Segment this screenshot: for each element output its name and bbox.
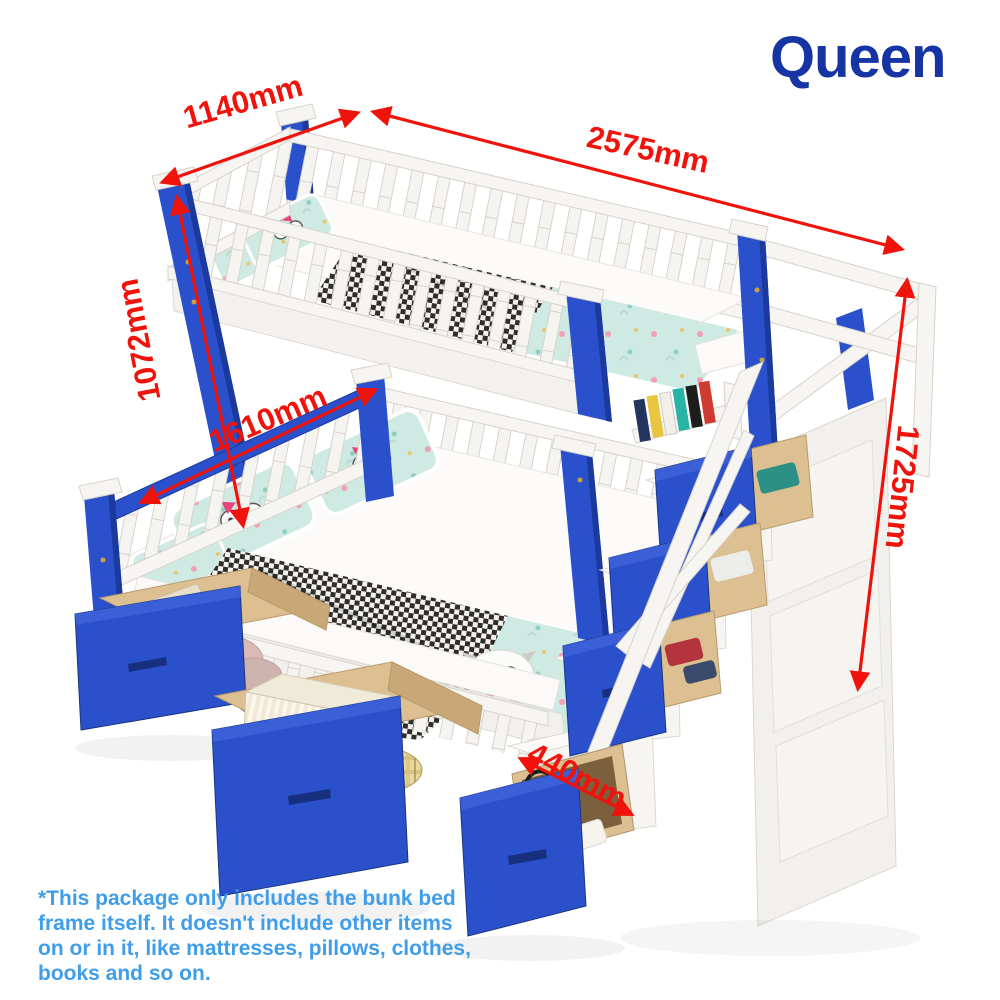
disclaimer-line: *This package only includes the bunk bed (38, 886, 398, 911)
disclaimer-line: books and so on. (38, 961, 398, 986)
underbed-drawer-2 (212, 662, 482, 896)
product-image: Queen 1140mm 2575mm 1072mm 1610mm 1725mm… (0, 0, 1000, 1000)
disclaimer-line: on or in it, like mattresses, pillows, c… (38, 936, 398, 961)
package-disclaimer: *This package only includes the bunk bed… (38, 886, 398, 986)
bunk-bed-illustration (0, 0, 1000, 1000)
disclaimer-line: frame itself. It doesn't include other i… (38, 911, 398, 936)
size-title: Queen (770, 28, 990, 89)
